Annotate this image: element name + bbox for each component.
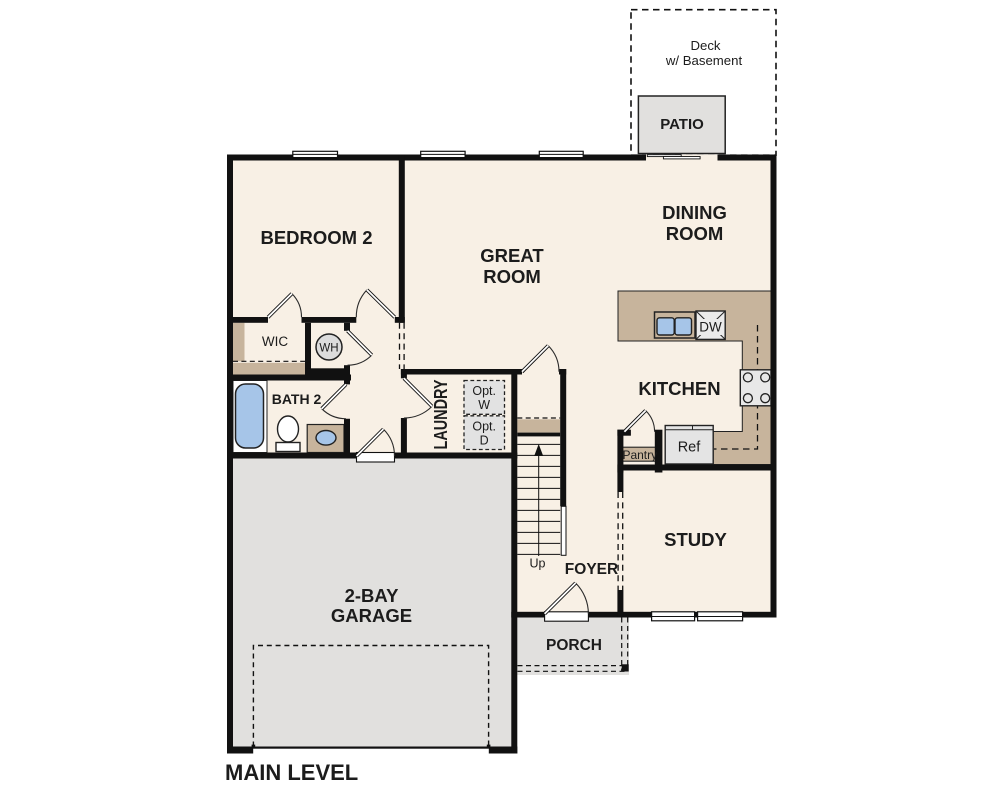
svg-text:D: D [480, 434, 489, 448]
svg-text:2-BAY: 2-BAY [345, 585, 399, 606]
svg-text:Up: Up [530, 557, 546, 571]
svg-text:WH: WH [319, 343, 338, 355]
svg-text:BEDROOM 2: BEDROOM 2 [260, 227, 372, 248]
svg-text:Deck: Deck [690, 38, 720, 53]
svg-text:GREAT: GREAT [480, 245, 544, 266]
svg-text:GARAGE: GARAGE [331, 605, 412, 626]
svg-text:WIC: WIC [262, 334, 288, 349]
svg-text:LAUNDRY: LAUNDRY [431, 380, 451, 450]
svg-text:MAIN LEVEL: MAIN LEVEL [225, 760, 358, 785]
svg-text:ROOM: ROOM [483, 266, 541, 287]
svg-text:Opt.: Opt. [472, 420, 496, 434]
svg-text:W: W [478, 398, 490, 412]
svg-text:KITCHEN: KITCHEN [638, 378, 720, 399]
svg-text:PATIO: PATIO [660, 116, 704, 133]
svg-text:ROOM: ROOM [666, 223, 724, 244]
svg-text:FOYER: FOYER [565, 561, 618, 578]
svg-text:Pantry: Pantry [622, 448, 657, 462]
svg-text:BATH 2: BATH 2 [272, 391, 322, 407]
svg-text:Ref: Ref [678, 440, 702, 456]
svg-text:PORCH: PORCH [546, 637, 602, 654]
svg-text:STUDY: STUDY [664, 529, 727, 550]
svg-text:w/ Basement: w/ Basement [665, 53, 743, 68]
svg-text:DINING: DINING [662, 202, 727, 223]
svg-text:Opt.: Opt. [472, 384, 496, 398]
svg-text:DW: DW [699, 320, 722, 335]
